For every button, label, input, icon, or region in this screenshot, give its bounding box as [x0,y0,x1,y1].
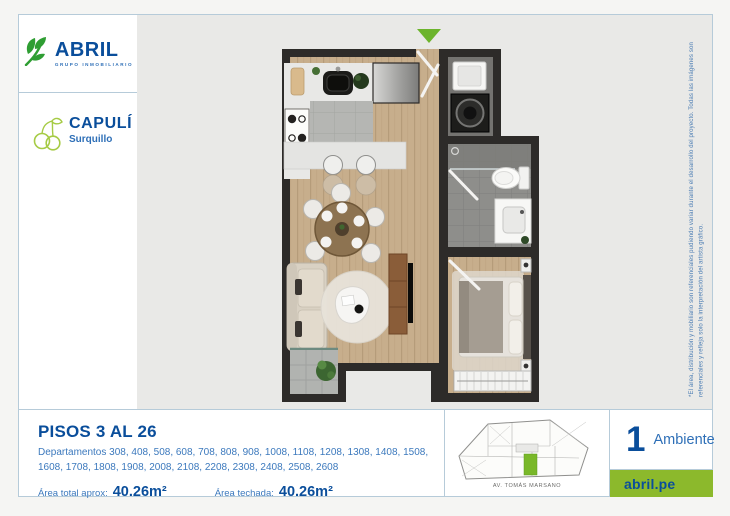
kitchen-faucet [336,67,341,72]
flyer-page: ABRIL GRUPO INMOBILIARIO CAPULÍ Surquill… [0,0,730,516]
floor-plan-panel: *El área, distribución y mobiliario son … [137,14,713,410]
area-techada: Área techada: 40.26m² [215,484,333,500]
keyplan-panel: AV. TOMÁS MARSANO [445,409,610,497]
kitchen-tile-floor [310,101,373,142]
area-techada-value: 40.26m² [279,484,333,500]
abril-name: ABRIL [55,40,119,60]
rooms-count: 1 [626,422,645,457]
nightstand-lamp-1 [524,263,529,268]
coffee-table-book [342,295,355,306]
bed-pillow-1 [509,282,522,316]
nightstand-lamp-2 [524,364,529,369]
divider-wall-2 [439,101,448,169]
kitchen-island [284,142,406,169]
info-panel: PISOS 3 AL 26 Departamentos 308, 408, 50… [18,409,445,497]
bar-stool-seat-2 [357,156,376,175]
burner-1 [288,115,296,123]
fridge [373,63,419,103]
keyplan-street-label: AV. TOMÁS MARSANO [493,483,561,489]
throw-pillow-1 [295,279,302,295]
legal-disclaimer: *El área, distribución y mobiliario son … [688,37,707,397]
laundry-sink-basin [458,66,481,86]
sofa-back [287,263,297,351]
rooms-label: Ambiente [653,432,714,448]
abril-tagline: GRUPO INMOBILIARIO [55,62,133,67]
unit-summary-panel: 1 Ambiente [610,409,713,470]
brand-panel: ABRIL GRUPO INMOBILIARIO CAPULÍ Surquill… [18,14,138,410]
terrace-plant-leaf-1 [318,361,327,370]
abril-logo: ABRIL GRUPO INMOBILIARIO [19,15,137,93]
capuli-fruit-icon [31,115,63,156]
website-bar: abril.pe [610,470,713,497]
areas-row: Área total aprox: 40.26m² Área techada: … [38,484,444,500]
project-logo: CAPULÍ Surquillo [19,93,137,156]
washer-drum [464,107,477,120]
bed-pillow-2 [509,320,522,354]
floors-title: PISOS 3 AL 26 [38,422,444,442]
herb-pot [312,67,320,75]
project-name: CAPULÍ [69,115,132,133]
terrace-plant-leaf-2 [327,371,335,379]
keyplan-unit-highlight [524,454,537,475]
divider-wall-1 [439,49,448,63]
vanity-faucet [520,210,524,214]
cutting-board [291,68,304,95]
keyplan-elevator-core [516,444,538,452]
project-district: Surquillo [69,134,132,145]
bar-stool-seat-1 [324,156,343,175]
coffee-table [335,287,369,324]
bed-blanket-fold [459,281,469,353]
area-total-value: 40.26m² [113,484,167,500]
wall-bath-bedroom [448,247,539,257]
toilet-seat [495,172,513,185]
kitchen-sink-basin [327,75,349,91]
bar-stool-cushion-2 [356,175,376,195]
tv [408,263,413,323]
divider-wall-3 [439,204,448,259]
keyplan-diagram [452,418,602,482]
area-techada-label: Área techada: [215,488,274,499]
website-link[interactable]: abril.pe [624,476,675,492]
entry-arrow-icon [417,29,441,43]
coffee-table-tray [355,305,364,314]
counter-plant-leaf [355,75,361,81]
shower-zone [448,144,531,169]
departamentos-list: Departamentos 308, 408, 508, 608, 708, 8… [38,445,438,475]
divider-wall-4 [439,294,448,371]
throw-pillow-2 [295,321,302,337]
area-total-label: Área total aprox: [38,488,108,499]
area-total: Área total aprox: 40.26m² [38,484,167,500]
wall-laundry-bath [448,136,539,144]
tv-console [389,254,407,334]
bed-headboard [523,275,531,359]
abril-leaf-icon [23,36,49,71]
terrace-corner-wall [338,363,346,402]
counter-plant [353,73,369,89]
burner-4 [298,134,306,142]
floor-plan [271,27,541,402]
bath-plant [521,236,529,244]
